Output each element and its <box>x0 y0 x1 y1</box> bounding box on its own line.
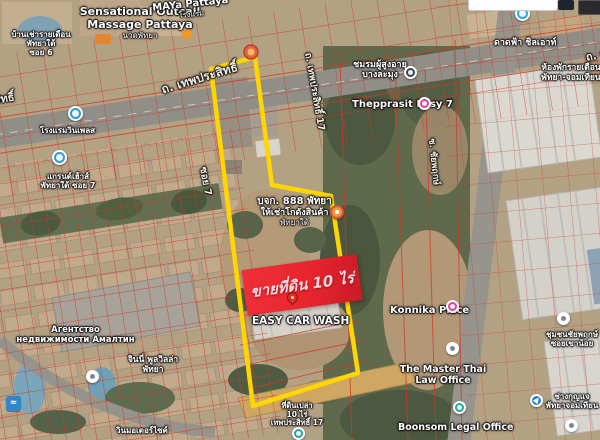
hotel-pin-1-icon[interactable] <box>68 106 83 121</box>
browser-chrome-icon[interactable] <box>558 0 574 10</box>
hotel-pin-2-icon[interactable] <box>52 150 67 165</box>
screenshot-icon[interactable] <box>578 0 600 15</box>
poi-label-corner[interactable]: บ้านเช่ารายเดือน พัทยาใต้ ซอย 6 <box>2 30 80 58</box>
poi-label-moto[interactable]: วินมอเตอร์ไซค์ <box>116 426 168 435</box>
poi-label-rooms[interactable]: ห้องพักรายเดือน พัทยา-จอมเทียน <box>540 64 600 84</box>
poi-label-hotel2[interactable]: แกรนด์เฮ้าส์ พัทยาใต้ ซอย 7 <box>36 172 100 190</box>
transit-pin-icon[interactable] <box>530 394 543 407</box>
office-pin-boonsom-icon[interactable] <box>453 401 466 414</box>
business-shield-icon[interactable] <box>330 205 344 219</box>
poi-label-locksmith[interactable]: ช่างกุญแจ พัทยาจอมเทียน <box>543 392 600 410</box>
poi-label-dada[interactable]: ดาดฟ้า ชิลเอาท์ <box>494 38 556 48</box>
office-pin-master-icon[interactable] <box>446 342 459 355</box>
poi-label-gina[interactable]: จินนี่ พูลวิลล่า พัทยา <box>118 356 188 376</box>
poi-label-master-thai[interactable]: The Master Thai Law Office <box>412 365 474 387</box>
poi-label-thepprasit-easy7[interactable]: Thepprasit Easy 7 <box>352 99 453 111</box>
business-pin-icon[interactable] <box>404 66 417 79</box>
poi-label-amaltin[interactable]: Агентство недвижимости Амалтин <box>28 326 123 346</box>
poi-label-carwash[interactable]: EASY CAR WASH <box>252 315 349 327</box>
sale-banner-text: ขายที่ดิน 10 ไร่ <box>249 266 354 304</box>
search-input[interactable] <box>475 3 549 13</box>
search-bar[interactable] <box>468 0 558 11</box>
plot-marker-icon[interactable] <box>244 45 258 59</box>
poi-label-boonsom[interactable]: Boonsom Legal Office <box>398 423 513 434</box>
pool-icon[interactable]: ≈ <box>6 396 21 411</box>
poi-pin-locksmith-icon[interactable] <box>565 419 578 432</box>
poi-pin-bottom-icon[interactable] <box>292 427 305 440</box>
map-viewport[interactable]: Sensational Outcall Massage Pattaya นวดพ… <box>0 0 600 440</box>
poi-label-land-detail[interactable]: ที่ดินเปล่า 10 ไร่ เทพประสิทธิ์ 17 <box>262 402 332 428</box>
poi-pin-community-icon[interactable] <box>557 312 570 325</box>
poi-label-hotel1[interactable]: โรงแรมวินเพลส <box>40 126 95 135</box>
hotel-pin-easy7-icon[interactable] <box>418 97 431 110</box>
poi-label-community[interactable]: ชุมชนชัยพฤกษ์ ซอยเขาน้อย <box>543 330 600 348</box>
hotel-pin-konnika-icon[interactable] <box>446 300 459 313</box>
poi-pin-amaltin-icon[interactable] <box>86 370 99 383</box>
